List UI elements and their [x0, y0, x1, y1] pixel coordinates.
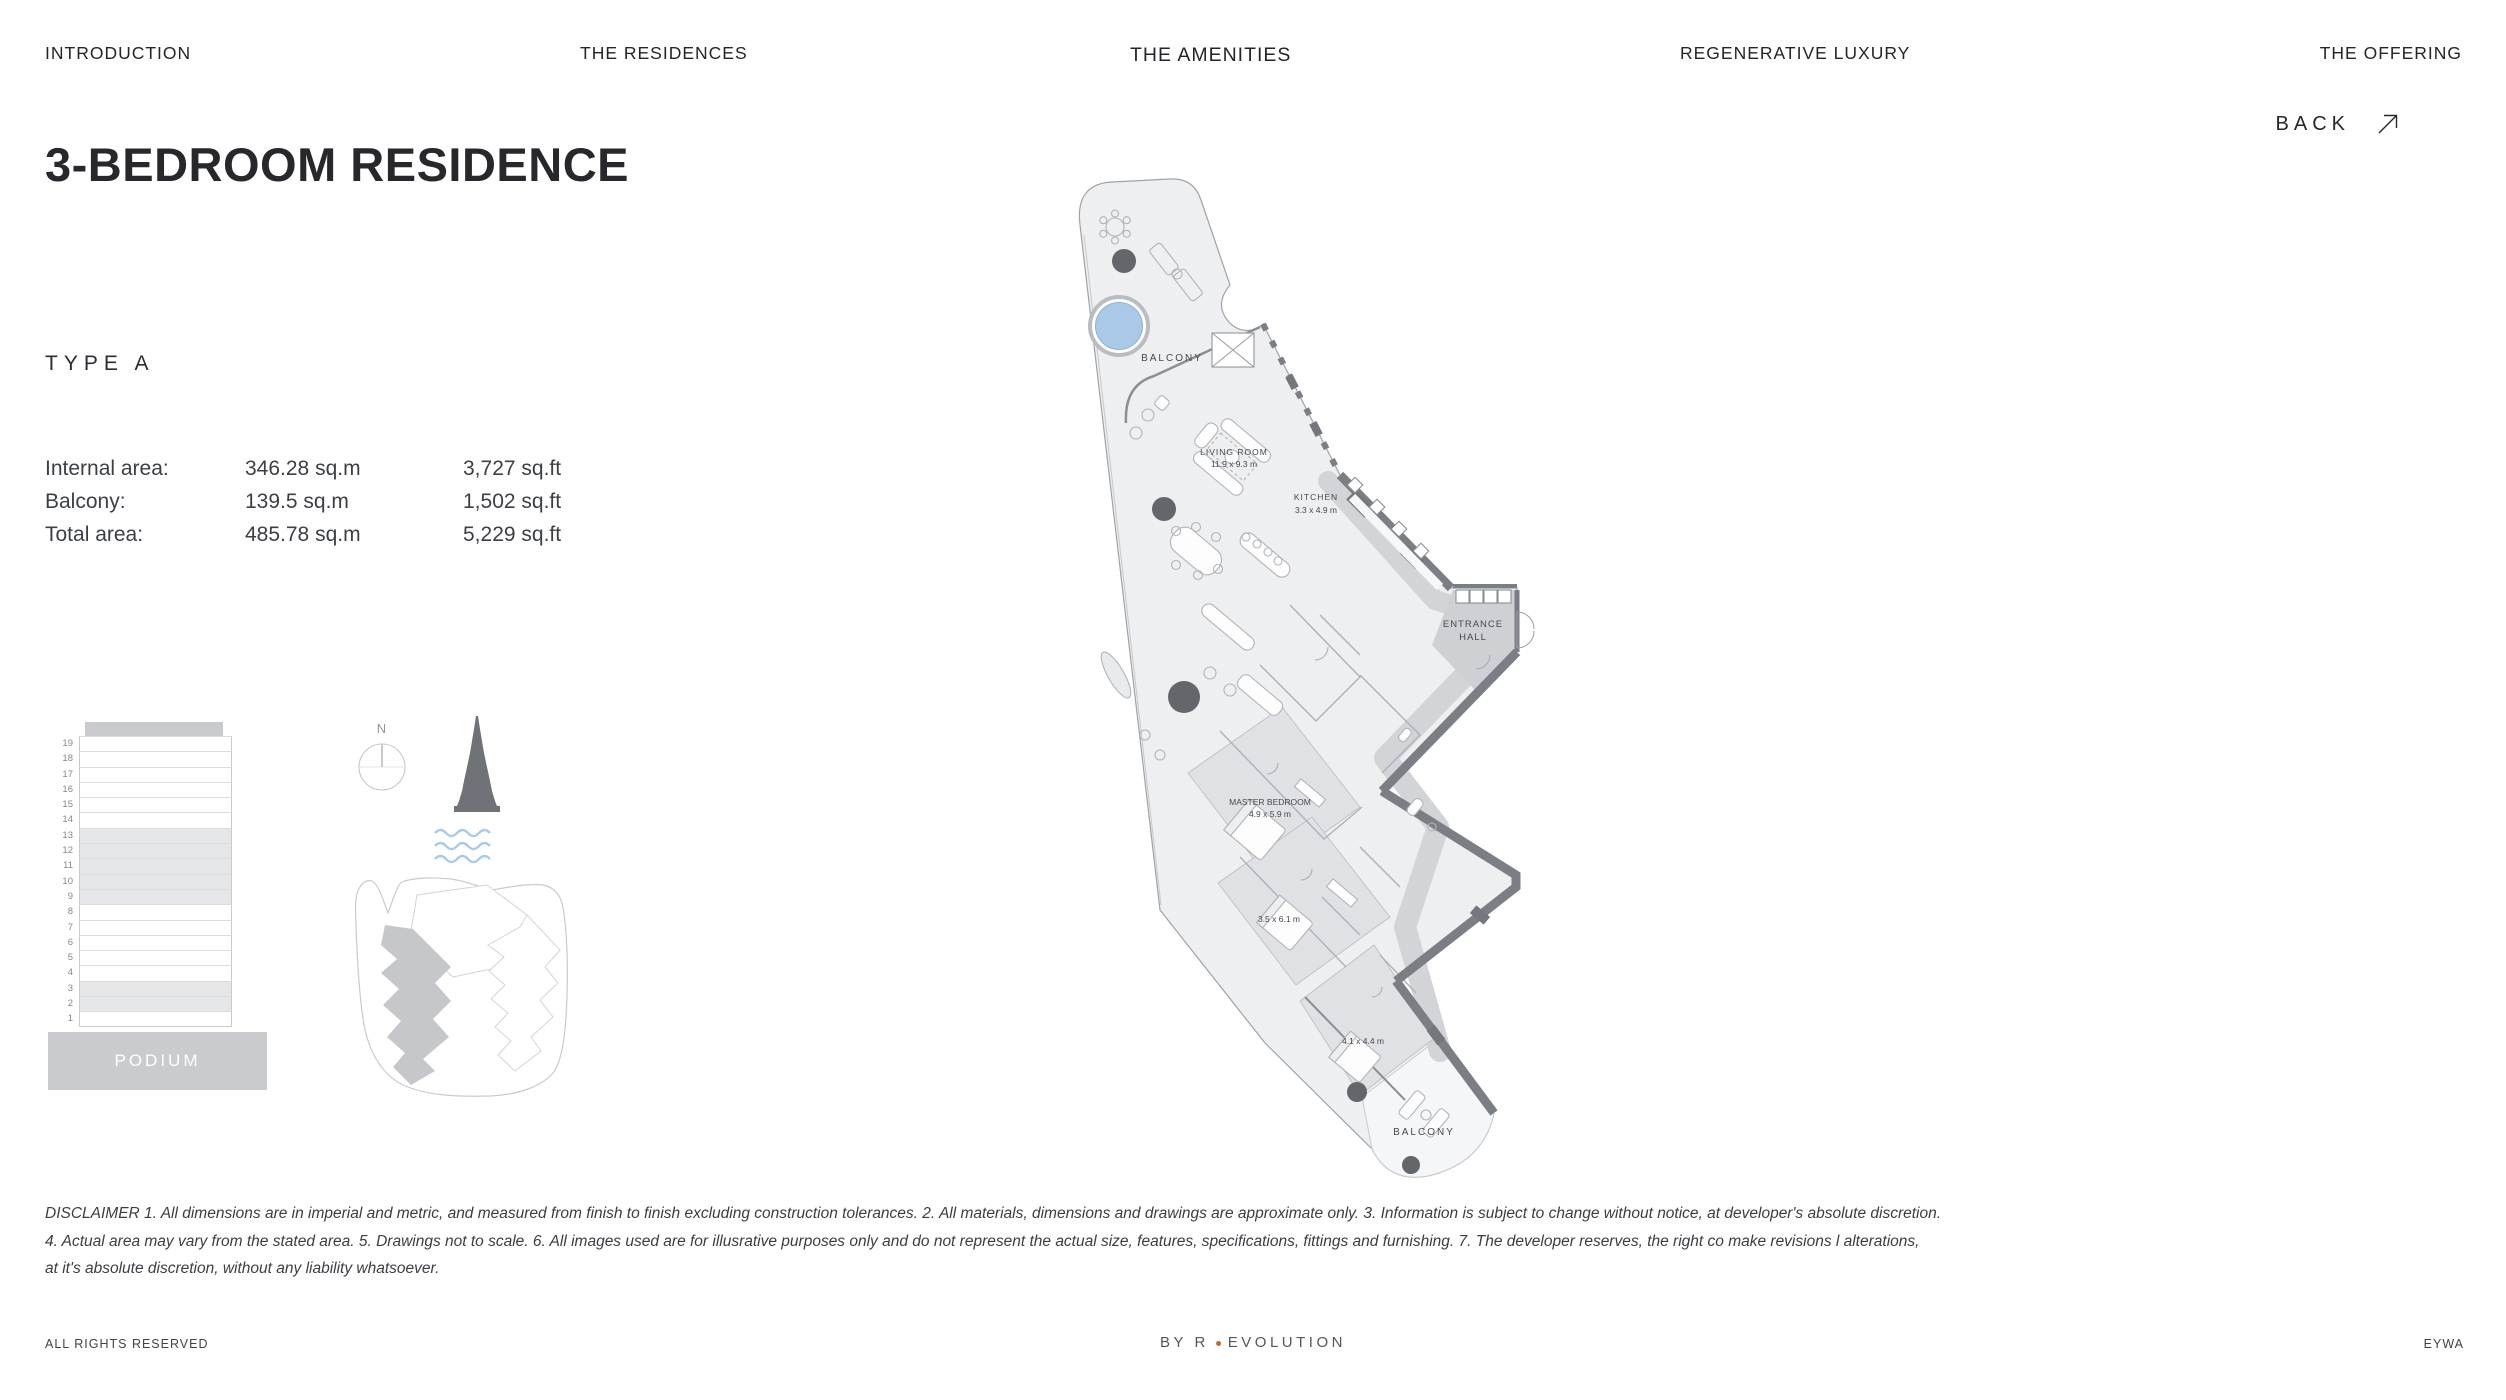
floor-row: 17	[45, 767, 232, 782]
floor-row: 3	[45, 981, 232, 996]
label-living-room-dim: 11.9 x 9.3 m	[1211, 459, 1257, 469]
floor-row: 14	[45, 812, 232, 827]
label-balcony-top: BALCONY	[1141, 353, 1203, 364]
floor-cell	[79, 904, 232, 919]
plunge-pool	[1090, 297, 1148, 355]
building-roof-cap	[85, 722, 223, 736]
floor-number: 12	[45, 843, 79, 858]
area-metric: 485.78 sq.m	[245, 518, 463, 551]
planter-icon	[1152, 497, 1176, 521]
floor-cell	[79, 751, 232, 766]
floor-row: 11	[45, 858, 232, 873]
floor-row: 15	[45, 797, 232, 812]
floor-row: 10	[45, 874, 232, 889]
podium-block: PODIUM	[48, 1032, 267, 1090]
floor-number: 15	[45, 797, 79, 812]
floor-cell	[79, 782, 232, 797]
planter-icon	[1168, 681, 1200, 713]
floor-row: 19	[45, 736, 232, 751]
floor-plan: BALCONY LIVING ROOM 11.9 x 9.3 m KITCHEN…	[1060, 175, 1540, 1185]
floor-number: 18	[45, 751, 79, 766]
area-metric: 139.5 sq.m	[245, 485, 463, 518]
footer-project-name: EYWA	[2424, 1337, 2464, 1351]
floor-cell	[79, 767, 232, 782]
entrance-doors	[1517, 612, 1534, 648]
area-table: Internal area: 346.28 sq.m 3,727 sq.ft B…	[45, 452, 561, 551]
floor-number: 3	[45, 981, 79, 996]
floor-row: 12	[45, 843, 232, 858]
floor-number: 6	[45, 935, 79, 950]
label-bedroom3-dim: 4.1 x 4.4 m	[1342, 1036, 1384, 1046]
floor-number: 11	[45, 858, 79, 873]
burj-khalifa-icon	[454, 716, 500, 812]
back-button[interactable]: BACK	[2276, 112, 2400, 136]
area-imperial: 5,229 sq.ft	[463, 518, 561, 551]
area-label: Total area:	[45, 518, 245, 551]
nav-the-amenities[interactable]: THE AMENITIES	[1130, 44, 1291, 67]
page-title: 3-BEDROOM RESIDENCE	[45, 137, 629, 192]
arrow-up-right-icon	[2376, 112, 2400, 136]
footer-rights: ALL RIGHTS RESERVED	[45, 1337, 209, 1351]
label-entrance-1: ENTRANCE	[1443, 619, 1503, 630]
floor-cell	[79, 812, 232, 827]
planter-icon	[1112, 249, 1136, 273]
floor-row: 9	[45, 889, 232, 904]
floor-cell	[79, 828, 232, 843]
disclaimer-line: 4. Actual area may vary from the stated …	[45, 1228, 2465, 1256]
brand-suffix: EVOLUTION	[1228, 1334, 1346, 1351]
site-plan: N	[355, 715, 625, 1105]
area-row-balcony: Balcony: 139.5 sq.m 1,502 sq.ft	[45, 485, 561, 518]
floor-number: 7	[45, 920, 79, 935]
area-label: Internal area:	[45, 452, 245, 485]
floor-cell	[79, 996, 232, 1011]
label-master-bedroom: MASTER BEDROOM	[1229, 797, 1311, 807]
podium-label: PODIUM	[115, 1051, 201, 1071]
label-kitchen: KITCHEN	[1294, 492, 1338, 502]
area-metric: 346.28 sq.m	[245, 452, 463, 485]
planter-icon	[1347, 1082, 1367, 1102]
label-kitchen-dim: 3.3 x 4.9 m	[1295, 505, 1337, 515]
label-living-room: LIVING ROOM	[1200, 447, 1268, 457]
water-waves-icon	[435, 830, 490, 862]
floor-number: 19	[45, 736, 79, 751]
nav-regenerative-luxury[interactable]: REGENERATIVE LUXURY	[1680, 43, 1910, 64]
floor-row: 16	[45, 782, 232, 797]
nav-introduction[interactable]: INTRODUCTION	[45, 43, 191, 64]
floor-number: 8	[45, 904, 79, 919]
floor-cell	[79, 858, 232, 873]
floor-number: 13	[45, 828, 79, 843]
floor-number: 16	[45, 782, 79, 797]
label-balcony-bottom: BALCONY	[1393, 1127, 1455, 1138]
floor-row: 1	[45, 1011, 232, 1026]
floor-cell	[79, 920, 232, 935]
floor-row: 2	[45, 996, 232, 1011]
label-master-dim: 4.9 x 5.9 m	[1249, 809, 1291, 819]
compass-north-label: N	[377, 721, 387, 736]
area-label: Balcony:	[45, 485, 245, 518]
floor-number: 2	[45, 996, 79, 1011]
floor-row: 7	[45, 920, 232, 935]
floor-number: 10	[45, 874, 79, 889]
floor-cell	[79, 981, 232, 996]
footer-brand: BY R EVOLUTION	[1160, 1334, 1346, 1351]
brand-prefix: BY R	[1160, 1334, 1209, 1351]
label-entrance-2: HALL	[1459, 632, 1487, 643]
planter-icon	[1402, 1156, 1420, 1174]
building-stack-diagram: 19181716151413121110987654321 PODIUM	[45, 715, 270, 1180]
floor-cell	[79, 950, 232, 965]
area-row-total: Total area: 485.78 sq.m 5,229 sq.ft	[45, 518, 561, 551]
floor-cell	[79, 889, 232, 904]
floor-number: 14	[45, 812, 79, 827]
floor-number: 1	[45, 1011, 79, 1026]
floor-row: 6	[45, 935, 232, 950]
floor-cell	[79, 1011, 232, 1026]
brand-dot-icon	[1216, 1341, 1221, 1346]
nav-the-offering[interactable]: THE OFFERING	[2320, 43, 2462, 64]
floor-cell	[79, 843, 232, 858]
disclaimer-line: at it's absolute discretion, without any…	[45, 1255, 2465, 1283]
area-imperial: 3,727 sq.ft	[463, 452, 561, 485]
floor-number: 9	[45, 889, 79, 904]
floor-cell	[79, 935, 232, 950]
floor-row: 8	[45, 904, 232, 919]
area-row-internal: Internal area: 346.28 sq.m 3,727 sq.ft	[45, 452, 561, 485]
floor-row: 18	[45, 751, 232, 766]
floor-row: 13	[45, 828, 232, 843]
floor-number: 4	[45, 965, 79, 980]
disclaimer-text: DISCLAIMER 1. All dimensions are in impe…	[45, 1200, 2465, 1283]
floor-cell	[79, 965, 232, 980]
floor-cell	[79, 736, 232, 751]
label-bedroom2-dim: 3.5 x 6.1 m	[1258, 914, 1300, 924]
floor-number: 17	[45, 767, 79, 782]
unit-type-label: TYPE A	[45, 352, 155, 376]
floor-number: 5	[45, 950, 79, 965]
floor-cell	[79, 874, 232, 889]
floor-rows: 19181716151413121110987654321	[45, 736, 232, 1027]
back-button-label: BACK	[2276, 113, 2350, 136]
floor-row: 5	[45, 950, 232, 965]
disclaimer-line: DISCLAIMER 1. All dimensions are in impe…	[45, 1200, 2465, 1228]
nav-the-residences[interactable]: THE RESIDENCES	[580, 43, 748, 64]
area-imperial: 1,502 sq.ft	[463, 485, 561, 518]
floor-row: 4	[45, 965, 232, 980]
floor-cell	[79, 797, 232, 812]
